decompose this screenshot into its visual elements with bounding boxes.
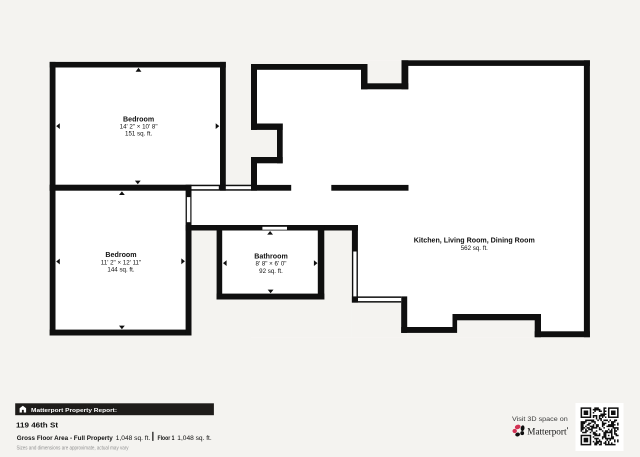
svg-text:Kitchen, Living Room, Dining R: Kitchen, Living Room, Dining Room	[414, 237, 535, 245]
svg-text:92 sq. ft.: 92 sq. ft.	[259, 268, 283, 275]
svg-text:Bathroom: Bathroom	[254, 252, 288, 260]
svg-text:11' 2" × 12' 11": 11' 2" × 12' 11"	[101, 259, 141, 266]
svg-text:151 sq. ft.: 151 sq. ft.	[125, 131, 152, 138]
svg-text:Floor 1: Floor 1	[158, 435, 175, 442]
svg-text:Visit 3D space on: Visit 3D space on	[512, 416, 568, 423]
svg-text:562 sq. ft.: 562 sq. ft.	[461, 245, 488, 252]
svg-text:Sizes and dimensions are appro: Sizes and dimensions are approximate, ac…	[17, 446, 129, 452]
svg-text:144 sq. ft.: 144 sq. ft.	[107, 267, 134, 274]
svg-text:Matterport: Matterport	[527, 426, 567, 436]
svg-text:1,048 sq. ft.: 1,048 sq. ft.	[177, 435, 212, 442]
svg-text:8' 8" × 6' 0": 8' 8" × 6' 0"	[255, 261, 286, 268]
svg-text:119 46th St: 119 46th St	[16, 420, 58, 429]
svg-text:Bedroom: Bedroom	[123, 115, 154, 123]
svg-text:14' 2" × 10' 8": 14' 2" × 10' 8"	[120, 123, 158, 130]
svg-text:1,048 sq. ft.: 1,048 sq. ft.	[116, 435, 151, 442]
svg-text:Gross Floor Area - Full Proper: Gross Floor Area - Full Property	[17, 435, 113, 442]
svg-text:Matterport Property Report:: Matterport Property Report:	[31, 408, 117, 414]
svg-text:Bedroom: Bedroom	[105, 251, 136, 259]
